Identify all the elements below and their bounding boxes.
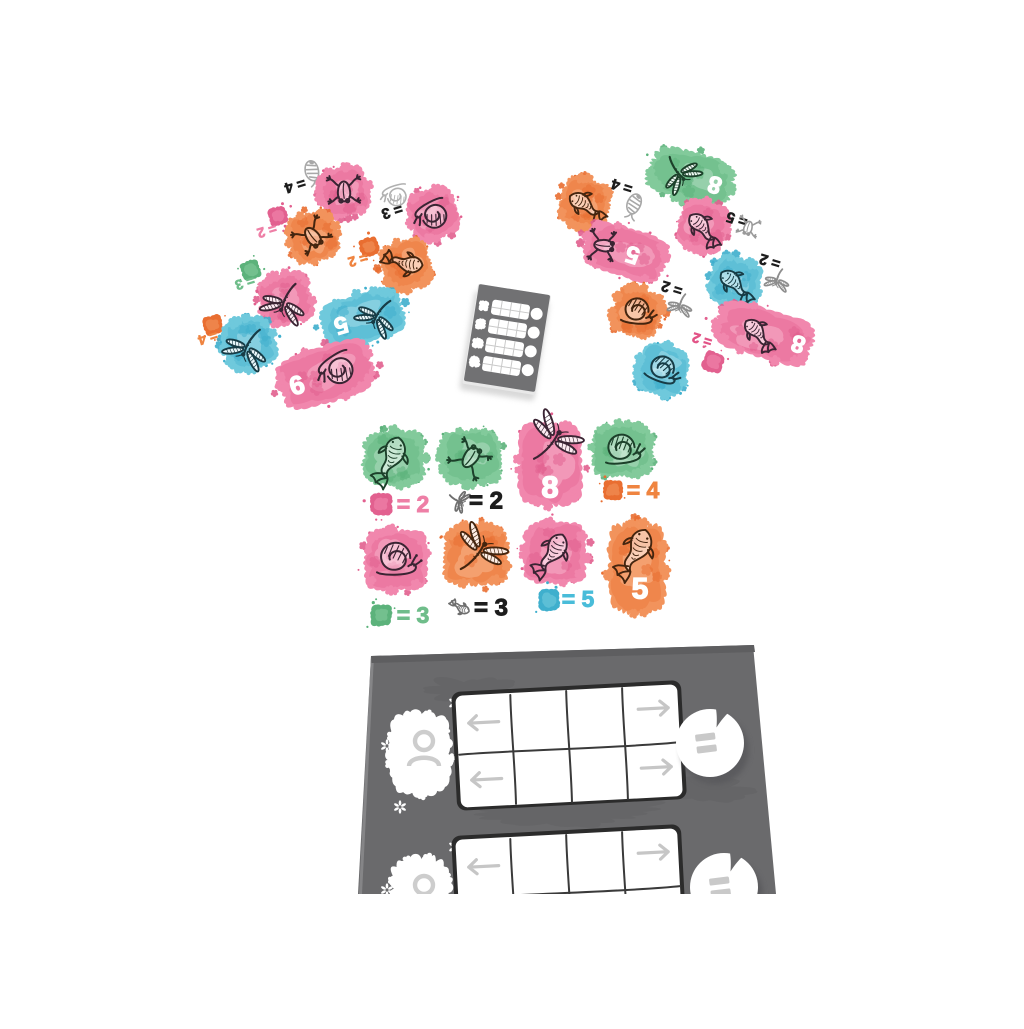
svg-text:= 4: = 4 bbox=[627, 477, 660, 503]
svg-text:= 3: = 3 bbox=[397, 602, 430, 628]
svg-text:= 5: = 5 bbox=[562, 586, 595, 612]
svg-text:= 2: = 2 bbox=[397, 491, 430, 517]
svg-text:8: 8 bbox=[541, 470, 558, 505]
svg-text:= 2: = 2 bbox=[469, 488, 503, 515]
svg-text:5: 5 bbox=[632, 573, 649, 606]
svg-text:= 3: = 3 bbox=[474, 595, 508, 622]
